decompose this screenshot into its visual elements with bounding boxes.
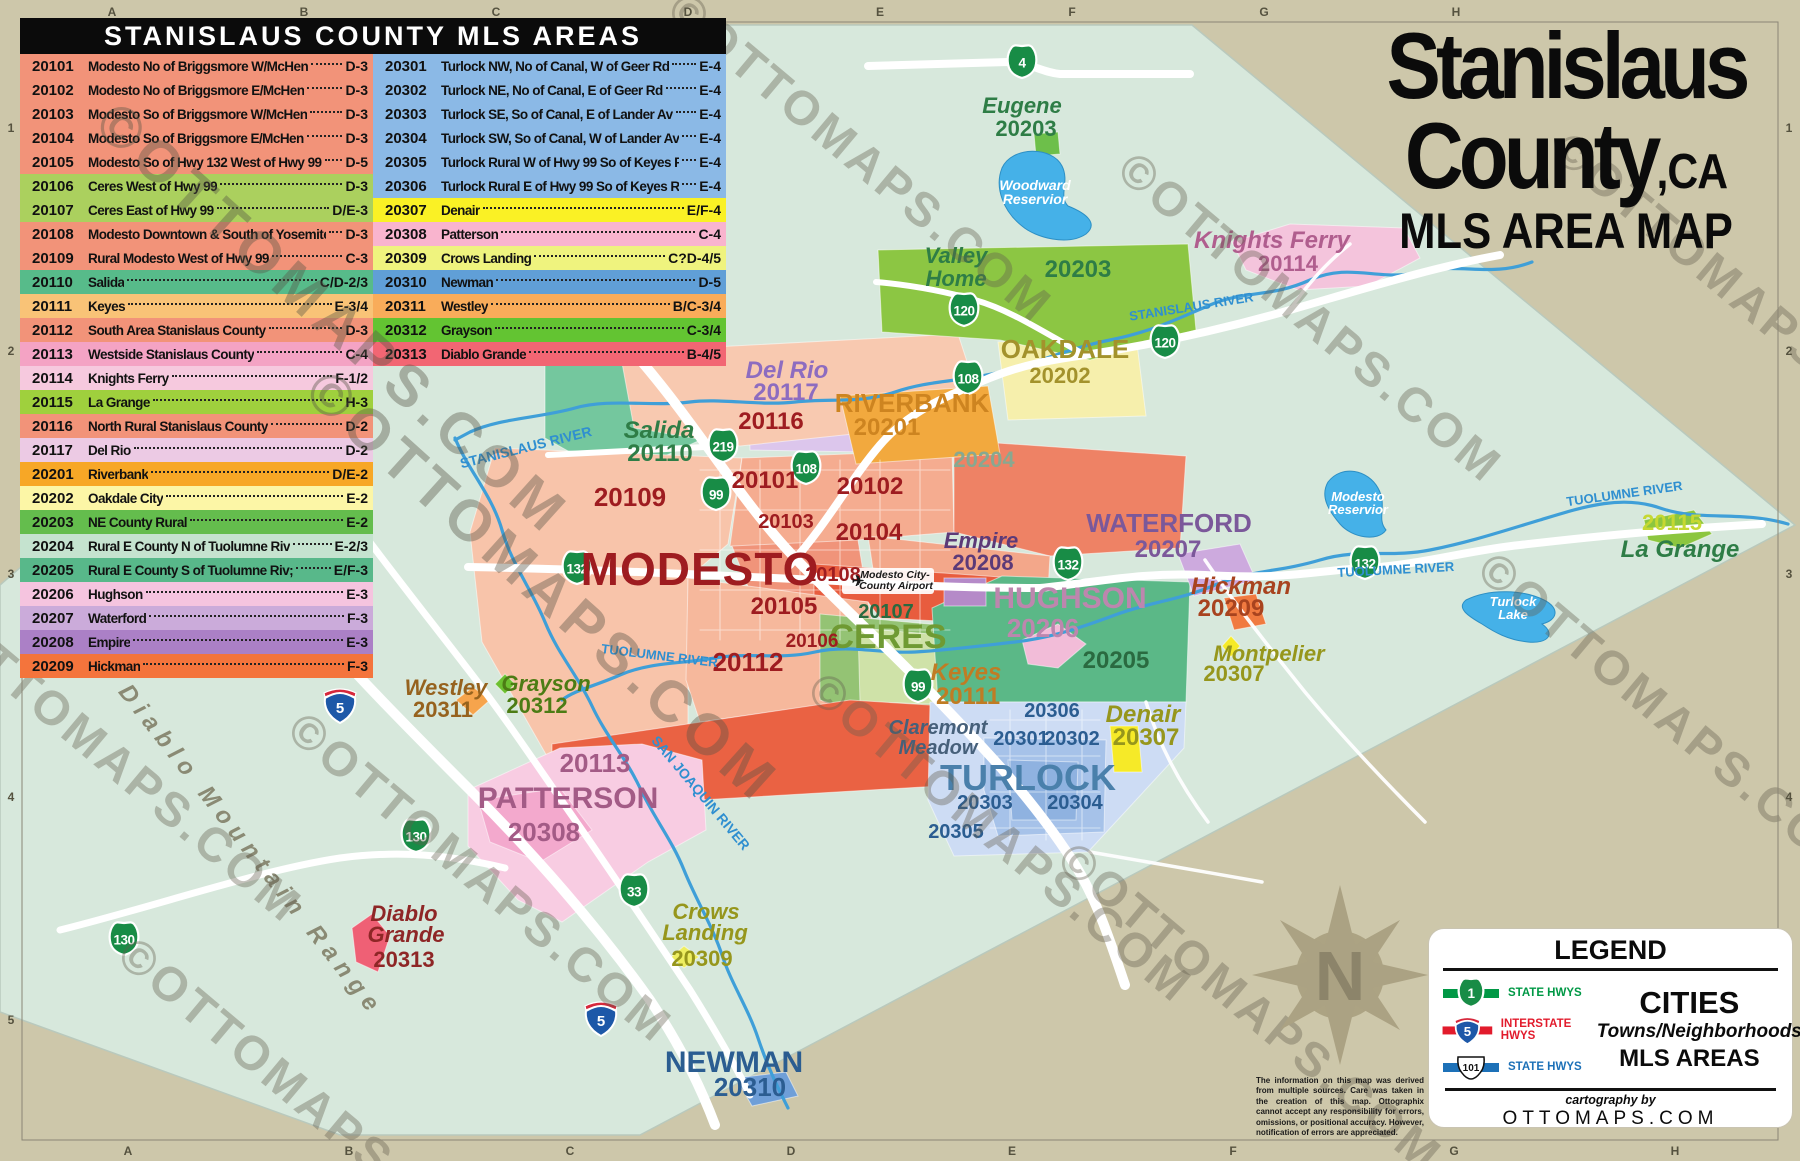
- mls-name: Hughson: [88, 587, 143, 602]
- grid-ref: B-4/5: [687, 346, 721, 362]
- map-label: County Airport: [859, 580, 933, 592]
- grid-ref: E-2/3: [335, 538, 368, 554]
- map-label: 20308: [508, 817, 580, 847]
- mls-code: 20105: [32, 154, 88, 171]
- state-hwy-shield: 132: [1054, 547, 1083, 580]
- map-label: 20204: [953, 447, 1015, 472]
- legend-shield-number: 1: [1467, 986, 1475, 1001]
- mls-name: South Area Stanislaus County: [88, 323, 266, 338]
- mls-code: 20113: [32, 346, 88, 363]
- dotted-leader: [128, 303, 331, 305]
- table-row: 20103 Modesto So of Briggsmore W/McHen D…: [20, 102, 373, 126]
- dotted-leader: [134, 447, 343, 449]
- dotted-leader: [172, 375, 333, 377]
- map-label: 20301: [993, 728, 1049, 750]
- grid-number-left: 1: [8, 121, 15, 135]
- table-row: 20313 Diablo Grande B-4/5: [373, 342, 726, 366]
- credit-name: OTTOMAPS.COM: [1445, 1108, 1776, 1131]
- table-row: 20306 Turlock Rural E of Hwy 99 So of Ke…: [373, 174, 726, 198]
- legend-mls-label: MLS AREAS: [1597, 1044, 1782, 1074]
- dotted-leader: [217, 207, 330, 209]
- grid-letter-top: E: [876, 5, 884, 19]
- dotted-leader: [133, 639, 343, 641]
- mls-name: Modesto So of Briggsmore W/McHen: [88, 107, 307, 122]
- map-label: 20103: [758, 511, 814, 533]
- grid-letter-bottom: C: [566, 1144, 575, 1158]
- grid-ref: E-4: [699, 106, 721, 122]
- mls-area-table: STANISLAUS COUNTY MLS AREAS 20101 Modest…: [20, 18, 726, 678]
- map-label: Landing: [662, 920, 748, 945]
- shield-number: 4: [1018, 56, 1026, 71]
- table-row: 20301 Turlock NW, No of Canal, W of Geer…: [373, 54, 726, 78]
- dotted-leader: [310, 111, 342, 113]
- table-row: 20201 Riverbank D/E-2: [20, 462, 373, 486]
- table-row: 20202 Oakdale City E-2: [20, 486, 373, 510]
- map-label: 20201: [854, 414, 921, 441]
- map-label: 20205: [1083, 647, 1150, 674]
- map-label: 20307: [1203, 661, 1264, 686]
- grid-ref: D-3: [345, 226, 368, 242]
- map-label: 20313: [373, 947, 434, 972]
- mls-name: Modesto No of Briggsmore E/McHen: [88, 83, 304, 98]
- table-row: 20206 Hughson E-3: [20, 582, 373, 606]
- legend-title: LEGEND: [1443, 935, 1778, 971]
- table-row: 20114 Knights Ferry F-1/2: [20, 366, 373, 390]
- map-label: OAKDALE: [1001, 334, 1130, 364]
- legend-towns-label: Towns/Neighborhoods: [1597, 1020, 1782, 1044]
- dotted-leader: [496, 279, 695, 281]
- dotted-leader: [529, 351, 684, 353]
- dotted-leader: [271, 423, 343, 425]
- map-label: Eugene: [982, 93, 1061, 118]
- legend-body: 1 STATE HWYS 5 INTERSTATE HWYS: [1439, 974, 1782, 1085]
- dotted-leader: [269, 327, 343, 329]
- legend-hwy-column: 1 STATE HWYS 5 INTERSTATE HWYS: [1439, 974, 1597, 1085]
- mls-name: Modesto So of Hwy 132 West of Hwy 99: [88, 155, 322, 170]
- grid-ref: E-4: [699, 178, 721, 194]
- map-label: Reservior: [1003, 191, 1069, 207]
- table-row: 20312 Grayson C-3/4: [373, 318, 726, 342]
- grid-ref: E/F-3: [334, 562, 368, 578]
- table-row: 20303 Turlock SE, So of Canal, E of Land…: [373, 102, 726, 126]
- legend-item-label: INTERSTATE HWYS: [1501, 1018, 1597, 1042]
- grid-ref: D-2: [345, 442, 368, 458]
- mls-code: 20107: [32, 202, 88, 219]
- map-label: Reservior: [1328, 502, 1389, 517]
- map-label: 20111: [936, 683, 1000, 710]
- table-row: 20302 Turlock NE, No of Canal, E of Geer…: [373, 78, 726, 102]
- interstate-icon: 5: [1439, 1012, 1496, 1048]
- mls-code: 20102: [32, 82, 88, 99]
- mls-name: Westside Stanislaus County: [88, 347, 254, 362]
- mls-code: 20301: [385, 58, 441, 75]
- table-row: 20311 Westley B/C-3/4: [373, 294, 726, 318]
- mls-name: Westley: [441, 299, 488, 314]
- legend-item-label: STATE HWYS: [1508, 1061, 1582, 1073]
- grid-ref: E-3: [346, 634, 368, 650]
- mls-name: Turlock Rural W of Hwy 99 So of Keyes Rd: [441, 155, 679, 170]
- dotted-leader: [666, 87, 697, 89]
- grid-number-left: 4: [8, 790, 15, 804]
- mls-name: Patterson: [441, 227, 498, 242]
- dotted-leader: [495, 327, 684, 329]
- mls-code: 20313: [385, 346, 441, 363]
- table-row: 20107 Ceres East of Hwy 99 D/E-3: [20, 198, 373, 222]
- map-label: 20302: [1044, 728, 1100, 750]
- table-row: 20305 Turlock Rural W of Hwy 99 So of Ke…: [373, 150, 726, 174]
- table-row: 20104 Modesto So of Briggsmore E/McHen D…: [20, 126, 373, 150]
- mls-code: 20311: [385, 298, 441, 315]
- grid-number-right: 4: [1786, 790, 1793, 804]
- dotted-leader: [311, 63, 342, 65]
- mls-name: Knights Ferry: [88, 371, 169, 386]
- grid-letter-top: B: [300, 5, 309, 19]
- table-row: 20308 Patterson C-4: [373, 222, 726, 246]
- table-row: 20309 Crows Landing C?D-4/5: [373, 246, 726, 270]
- table-row: 20203 NE County Rural E-2: [20, 510, 373, 534]
- grid-ref: D-3: [345, 106, 368, 122]
- mls-code: 20304: [385, 130, 441, 147]
- mls-code: 20111: [32, 298, 88, 315]
- map-label: PATTERSON: [478, 782, 659, 815]
- table-row: 20304 Turlock SW, So of Canal, W of Land…: [373, 126, 726, 150]
- table-columns: 20101 Modesto No of Briggsmore W/McHen D…: [20, 54, 726, 678]
- mls-name: Diablo Grande: [441, 347, 526, 362]
- dotted-leader: [149, 615, 344, 617]
- map-label: 20203: [1045, 256, 1112, 283]
- map-label: La Grange: [1621, 536, 1740, 563]
- grid-ref: F-3: [347, 658, 368, 674]
- grid-letter-bottom: G: [1449, 1144, 1458, 1158]
- state-hwy-shield: 99: [904, 669, 933, 702]
- table-column-left: 20101 Modesto No of Briggsmore W/McHen D…: [20, 54, 373, 678]
- mls-name: La Grange: [88, 395, 150, 410]
- mls-name: Grayson: [441, 323, 492, 338]
- map-label: 20115: [1642, 510, 1702, 535]
- grid-ref: D-5: [345, 154, 368, 170]
- grid-letter-top: C: [492, 5, 501, 19]
- dotted-leader: [272, 255, 343, 257]
- state-hwy-shield: 33: [620, 874, 649, 907]
- grid-ref: D-3: [345, 82, 368, 98]
- map-label: 20312: [506, 693, 567, 718]
- mls-code: 20203: [32, 514, 88, 531]
- legend-item-label: STATE HWYS: [1508, 987, 1582, 999]
- mls-code: 20109: [32, 250, 88, 267]
- map-label: 20105: [751, 593, 818, 620]
- map-title-block: Stanislaus County,CA MLS AREA MAP: [1345, 22, 1787, 256]
- mls-code: 20312: [385, 322, 441, 339]
- map-label: Keyes: [931, 659, 1002, 686]
- grid-ref: C?D-4/5: [668, 250, 721, 266]
- map-label: 20208: [952, 550, 1013, 575]
- grid-ref: C/D-2/3: [320, 274, 368, 290]
- map-label: 20117: [753, 379, 818, 406]
- mls-name: Oakdale City: [88, 491, 163, 506]
- grid-ref: E-4: [699, 130, 721, 146]
- shield-number: 108: [795, 462, 817, 477]
- map-label: 20310: [714, 1072, 786, 1102]
- state-hwy-icon: 1: [1439, 975, 1503, 1011]
- table-row: 20209 Hickman F-3: [20, 654, 373, 678]
- mls-code: 20308: [385, 226, 441, 243]
- mls-name: Ceres West of Hwy 99: [88, 179, 217, 194]
- map-label: CERES: [829, 618, 946, 656]
- grid-ref: C-4: [345, 346, 368, 362]
- table-row: 20108 Modesto Downtown & South of Yosemi…: [20, 222, 373, 246]
- table-row: 20208 Empire E-3: [20, 630, 373, 654]
- table-row: 20113 Westside Stanislaus County C-4: [20, 342, 373, 366]
- table-row: 20307 Denair E/F-4: [373, 198, 726, 222]
- dotted-leader: [483, 207, 684, 209]
- mls-name: Turlock Rural E of Hwy 99 So of Keyes Rd: [441, 179, 679, 194]
- table-column-right: 20301 Turlock NW, No of Canal, W of Geer…: [373, 54, 726, 366]
- dotted-leader: [293, 543, 332, 545]
- dotted-leader: [166, 495, 343, 497]
- dotted-leader: [682, 159, 696, 161]
- map-label: 20203: [995, 116, 1056, 141]
- mls-name: Modesto So of Briggsmore E/McHen: [88, 131, 304, 146]
- legend-item-us-hwy: 101 STATE HWYS: [1439, 1048, 1597, 1085]
- shield-number: 33: [627, 885, 642, 900]
- title-county: County: [1405, 102, 1657, 207]
- grid-letter-bottom: D: [787, 1144, 796, 1158]
- mls-name: Del Rio: [88, 443, 131, 458]
- grid-letter-top: F: [1068, 5, 1075, 19]
- map-label: 20207: [1135, 536, 1202, 563]
- mls-name: Turlock SW, So of Canal, W of Lander Av: [441, 131, 679, 146]
- grid-ref: D-3: [345, 130, 368, 146]
- grid-ref: C-4: [698, 226, 721, 242]
- dotted-leader: [143, 663, 344, 665]
- mls-name: Rural E County N of Tuolumne Riv: [88, 539, 290, 554]
- legend-cities-label: CITIES: [1597, 985, 1782, 1021]
- grid-letter-top: G: [1259, 5, 1268, 19]
- grid-ref: E-4: [699, 154, 721, 170]
- us-hwy-icon: 101: [1439, 1049, 1503, 1085]
- grid-ref: D/E-2: [332, 466, 368, 482]
- mls-name: Newman: [441, 275, 493, 290]
- mls-name: Turlock NE, No of Canal, E of Geer Rd: [441, 83, 663, 98]
- mls-code: 20202: [32, 490, 88, 507]
- map-label: Grande: [367, 922, 444, 947]
- table-row: 20205 Rural E County S of Tuolumne Riv; …: [20, 558, 373, 582]
- grid-ref: D-3: [345, 58, 368, 74]
- title-line-1: Stanislaus: [1345, 22, 1787, 111]
- dotted-leader: [296, 567, 331, 569]
- map-label: 20206: [1007, 613, 1079, 643]
- mls-code: 20309: [385, 250, 441, 267]
- dotted-leader: [682, 135, 696, 137]
- mls-name: Salida: [88, 275, 124, 290]
- mls-code: 20206: [32, 586, 88, 603]
- table-row: 20102 Modesto No of Briggsmore E/McHen D…: [20, 78, 373, 102]
- mls-code: 20117: [32, 442, 88, 459]
- mls-name: Crows Landing: [441, 251, 531, 266]
- dotted-leader: [676, 111, 697, 113]
- legend-shield-number: 101: [1463, 1063, 1480, 1074]
- shield-number: 120: [1154, 336, 1175, 351]
- mls-code: 20108: [32, 226, 88, 243]
- grid-ref: C-3: [345, 250, 368, 266]
- dotted-leader: [682, 183, 696, 185]
- mls-name: Denair: [441, 203, 480, 218]
- grid-ref: D-2: [345, 418, 368, 434]
- dotted-leader: [220, 183, 342, 185]
- mls-name: Rural E County S of Tuolumne Riv;: [88, 563, 293, 578]
- disclaimer-text: The information on this map was derived …: [1256, 1076, 1424, 1138]
- credit-prefix: cartography by: [1445, 1093, 1776, 1108]
- grid-ref: D-3: [345, 178, 368, 194]
- map-label: 20304: [1047, 792, 1103, 814]
- map-label: 20309: [671, 946, 732, 971]
- title-state-suffix: ,CA: [1656, 144, 1727, 199]
- state-hwy-shield: 120: [950, 293, 979, 326]
- mls-code: 20201: [32, 466, 88, 483]
- legend-shield-number: 5: [1464, 1024, 1472, 1039]
- table-row: 20204 Rural E County N of Tuolumne Riv E…: [20, 534, 373, 558]
- grid-number-right: 3: [1786, 567, 1793, 581]
- table-row: 20207 Waterford F-3: [20, 606, 373, 630]
- table-title: STANISLAUS COUNTY MLS AREAS: [20, 18, 726, 54]
- grid-ref: E-3: [346, 586, 368, 602]
- dotted-leader: [534, 255, 665, 257]
- mls-code: 20106: [32, 178, 88, 195]
- mls-name: Keyes: [88, 299, 125, 314]
- dotted-leader: [127, 279, 316, 281]
- grid-ref: C-3/4: [687, 322, 721, 338]
- table-row: 20111 Keyes E-3/4: [20, 294, 373, 318]
- map-label: 20209: [1198, 595, 1265, 622]
- mls-code: 20303: [385, 106, 441, 123]
- grid-ref: F-1/2: [335, 370, 368, 386]
- grid-ref: E-3/4: [335, 298, 368, 314]
- state-hwy-shield: 4: [1008, 45, 1037, 78]
- grid-letter-bottom: E: [1008, 1144, 1016, 1158]
- table-row: 20110 Salida C/D-2/3: [20, 270, 373, 294]
- mls-name: Modesto No of Briggsmore W/McHen: [88, 59, 308, 74]
- grid-letter-top: A: [108, 5, 117, 19]
- mls-name: Turlock NW, No of Canal, W of Geer Rd: [441, 59, 669, 74]
- shield-number: 132: [1057, 558, 1078, 573]
- legend-item-interstate: 5 INTERSTATE HWYS: [1439, 1011, 1597, 1048]
- map-label: WATERFORD: [1086, 508, 1252, 538]
- dotted-leader: [151, 471, 329, 473]
- state-hwy-shield: 120: [1151, 325, 1180, 358]
- grid-number-left: 5: [8, 1013, 15, 1027]
- shield-number: 99: [911, 680, 925, 695]
- mls-code: 20305: [385, 154, 441, 171]
- map-label: 20202: [1029, 363, 1090, 388]
- map-label: 20104: [836, 519, 903, 546]
- region-empire: [944, 578, 986, 606]
- mls-code: 20114: [32, 370, 88, 387]
- table-row: 20310 Newman D-5: [373, 270, 726, 294]
- grid-ref: D-3: [345, 322, 368, 338]
- mls-code: 20306: [385, 178, 441, 195]
- mls-code: 20101: [32, 58, 88, 75]
- grid-letter-bottom: H: [1671, 1144, 1680, 1158]
- mls-code: 20207: [32, 610, 88, 627]
- mls-name: NE County Rural: [88, 515, 187, 530]
- mls-code: 20103: [32, 106, 88, 123]
- mls-code: 20205: [32, 562, 88, 579]
- map-label: 20113: [560, 748, 631, 778]
- map-label: 20307: [1113, 724, 1180, 751]
- legend-item-state-hwy: 1 STATE HWYS: [1439, 974, 1597, 1011]
- title-line-2: County,CA: [1345, 111, 1787, 200]
- map-label: 20306: [1024, 700, 1080, 722]
- compass-north-letter: N: [1315, 937, 1366, 1015]
- dotted-leader: [257, 351, 342, 353]
- dotted-leader: [190, 519, 343, 521]
- mls-code: 20209: [32, 658, 88, 675]
- grid-ref: E-4: [699, 82, 721, 98]
- table-row: 20117 Del Rio D-2: [20, 438, 373, 462]
- grid-number-left: 3: [8, 567, 15, 581]
- mls-name: Waterford: [88, 611, 146, 626]
- dotted-leader: [307, 87, 342, 89]
- mls-code: 20208: [32, 634, 88, 651]
- mls-code: 20110: [32, 274, 88, 291]
- grid-letter-bottom: B: [345, 1144, 354, 1158]
- mls-code: 20104: [32, 130, 88, 147]
- grid-number-right: 2: [1786, 344, 1793, 358]
- table-row: 20116 North Rural Stanislaus County D-2: [20, 414, 373, 438]
- table-row: 20101 Modesto No of Briggsmore W/McHen D…: [20, 54, 373, 78]
- mls-name: Turlock SE, So of Canal, E of Lander Av: [441, 107, 673, 122]
- mls-name: Riverbank: [88, 467, 148, 482]
- grid-ref: B/C-3/4: [673, 298, 721, 314]
- legend-type-column: CITIES Towns/Neighborhoods MLS AREAS: [1597, 974, 1782, 1085]
- map-label: 20106: [786, 631, 839, 652]
- mls-name: Rural Modesto West of Hwy 99: [88, 251, 269, 266]
- grid-ref: E-4: [699, 58, 721, 74]
- grid-letter-bottom: A: [124, 1144, 133, 1158]
- dotted-leader: [329, 231, 342, 233]
- grid-ref: D-5: [698, 274, 721, 290]
- grid-ref: F-3: [347, 610, 368, 626]
- dotted-leader: [146, 591, 344, 593]
- dotted-leader: [325, 159, 343, 161]
- mls-code: 20115: [32, 394, 88, 411]
- map-label: 20101: [732, 467, 799, 494]
- grid-ref: E-2: [346, 490, 368, 506]
- grid-letter-top: D: [684, 5, 693, 19]
- legend-credit: cartography by OTTOMAPS.COM: [1445, 1088, 1776, 1131]
- table-row: 20109 Rural Modesto West of Hwy 99 C-3: [20, 246, 373, 270]
- map-label: 20116: [738, 408, 803, 435]
- dotted-leader: [307, 135, 343, 137]
- map-label: 20102: [837, 473, 904, 500]
- grid-ref: H-3: [345, 394, 368, 410]
- table-row: 20105 Modesto So of Hwy 132 West of Hwy …: [20, 150, 373, 174]
- table-row: 20115 La Grange H-3: [20, 390, 373, 414]
- legend-box: LEGEND 1 STATE HWYS: [1428, 928, 1793, 1128]
- shield-number: 5: [336, 700, 344, 717]
- title-line-3: MLS AREA MAP: [1345, 205, 1787, 255]
- mls-code: 20204: [32, 538, 88, 555]
- mls-name: Empire: [88, 635, 130, 650]
- mls-code: 20112: [32, 322, 88, 339]
- grid-number-left: 2: [8, 344, 15, 358]
- grid-ref: E/F-4: [687, 202, 721, 218]
- mls-name: Hickman: [88, 659, 140, 674]
- mls-code: 20310: [385, 274, 441, 291]
- map-label: 20311: [413, 697, 473, 722]
- shield-number: 120: [953, 304, 974, 319]
- grid-letter-bottom: F: [1229, 1144, 1236, 1158]
